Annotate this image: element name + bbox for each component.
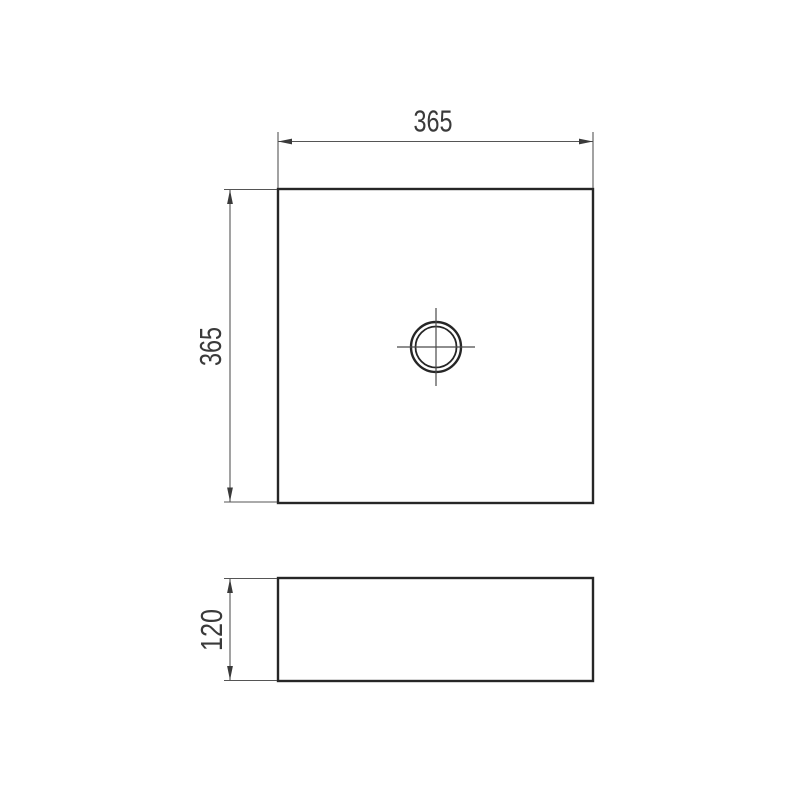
width-dim-arrow-right (579, 139, 593, 145)
depth-dim-arrow-top (227, 579, 233, 593)
height-dimension: 365 (193, 190, 277, 503)
height-dim-arrow-top (227, 190, 233, 204)
drawing-svg: 365 365 120 (0, 0, 800, 800)
depth-dimension: 120 (194, 579, 277, 681)
side-view (278, 578, 593, 681)
side-view-outline (278, 578, 593, 681)
width-dim-arrow-left (278, 139, 292, 145)
width-dim-label: 365 (414, 104, 453, 139)
width-dimension: 365 (278, 104, 593, 189)
depth-dim-arrow-bottom (227, 666, 233, 680)
height-dim-label: 365 (193, 327, 228, 366)
depth-dim-label: 120 (194, 609, 229, 651)
height-dim-arrow-bottom (227, 488, 233, 502)
top-view (278, 189, 593, 503)
technical-drawing-canvas: 365 365 120 (0, 0, 800, 800)
